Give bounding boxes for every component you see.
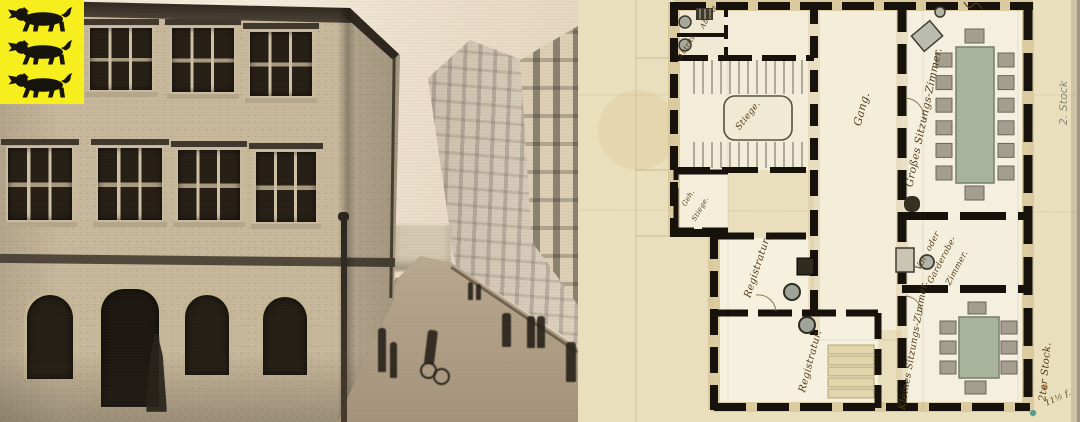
service-steps	[828, 345, 874, 398]
toilet-bowl	[679, 16, 691, 28]
margin-annotations: 2. Stock 2ter Stock. 11½ f.	[1037, 80, 1072, 407]
pedestrian	[390, 342, 397, 378]
bicycle-wheel	[433, 368, 450, 385]
window	[88, 26, 154, 92]
chair	[936, 143, 952, 157]
chair	[940, 341, 956, 354]
small-conference-table	[959, 317, 999, 378]
corner-lamp-post	[341, 220, 347, 422]
round-stove	[784, 284, 800, 300]
dark-stove	[797, 258, 814, 275]
coat-of-arms-flag	[0, 0, 84, 104]
lamp-post-top	[338, 212, 349, 221]
chair	[968, 302, 986, 314]
chair	[936, 98, 952, 112]
chair	[998, 166, 1014, 180]
pedestrian	[566, 342, 576, 382]
window	[6, 146, 74, 222]
chair	[1001, 321, 1017, 334]
ink-floor-note: 2ter Stock.	[1037, 342, 1053, 403]
chair	[998, 53, 1014, 67]
chair	[940, 321, 956, 334]
pedestrian	[378, 328, 386, 372]
floor-plan-drawing: Abtritt. Abtritt. Stiege. Geh. Stiege. G…	[578, 0, 1080, 422]
chair	[936, 166, 952, 180]
window	[170, 26, 236, 94]
chair	[965, 381, 986, 394]
chair	[936, 121, 952, 135]
corner-block	[904, 196, 920, 212]
window	[176, 148, 242, 222]
historic-montage: Abtritt. Abtritt. Stiege. Geh. Stiege. G…	[0, 0, 1080, 422]
chair	[965, 29, 984, 43]
window	[254, 150, 318, 224]
chair	[998, 76, 1014, 90]
window	[248, 30, 314, 98]
chair	[998, 121, 1014, 135]
chair	[1001, 361, 1017, 374]
historic-street-photo	[0, 0, 578, 422]
wall-stove	[896, 248, 914, 272]
chair	[1001, 341, 1017, 354]
stove-pipe	[935, 7, 945, 17]
chair	[965, 186, 984, 200]
large-conference-table	[956, 47, 994, 183]
window	[96, 146, 164, 222]
chair	[940, 361, 956, 374]
pedestrian	[527, 316, 535, 348]
chair	[998, 98, 1014, 112]
chair	[998, 143, 1014, 157]
pedestrian	[502, 313, 511, 347]
floor-plan-sheet: Abtritt. Abtritt. Stiege. Geh. Stiege. G…	[578, 0, 1080, 422]
distant-pedestrian	[468, 282, 473, 300]
distant-pedestrian	[476, 284, 481, 300]
pedestrian	[537, 316, 545, 348]
pencil-floor-note: 2. Stock	[1057, 80, 1070, 125]
